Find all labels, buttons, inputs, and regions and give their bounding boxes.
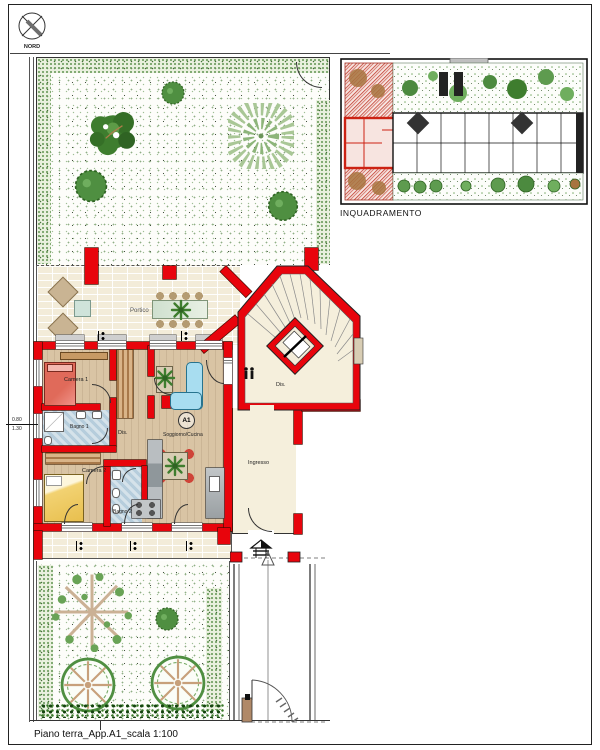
desk-camera1: [60, 352, 108, 360]
sheet-caption: Piano terra_App.A1_scala 1:100: [34, 729, 178, 740]
sink: [112, 470, 121, 480]
entry-path: [230, 550, 330, 730]
bush-icon: [160, 80, 186, 106]
drain-symbol: [76, 541, 85, 551]
hedge-south-right: [206, 588, 222, 710]
hedge-north-top: [37, 58, 329, 73]
tree-icon: [52, 572, 132, 652]
bagno1-label: Bagno 1: [70, 424, 89, 430]
window: [34, 360, 42, 386]
window: [56, 341, 84, 349]
wall-vertical-left-rooms: [110, 346, 116, 380]
bed-camera1-pillow: [47, 364, 73, 372]
portico-label: Portico: [130, 308, 149, 314]
hedge-north-left: [37, 58, 51, 264]
toilet: [112, 488, 120, 498]
outdoor-chairs-bottom: [154, 320, 206, 328]
portico-pillar: [85, 248, 98, 284]
side-table: [74, 300, 91, 317]
camera1-label: Camera 1: [64, 377, 88, 383]
soggiorno-label: Soggiorno/Cucina: [163, 432, 203, 438]
wall-vertical-left-rooms: [110, 398, 116, 446]
toilet: [44, 436, 52, 445]
wall-dis-soggiorno: [148, 396, 154, 418]
hedge-south-left: [38, 565, 53, 717]
drain-symbol: [186, 541, 195, 551]
bush-icon: [267, 190, 299, 222]
window: [98, 341, 126, 349]
title-separator-line: [10, 53, 390, 54]
window: [196, 341, 222, 349]
ingresso-wall-east: [294, 514, 302, 534]
window: [34, 480, 42, 506]
wall-camera2-bagno2: [104, 466, 110, 526]
sofa-L: [170, 392, 202, 410]
table-plant-icon: [170, 299, 192, 321]
kitchen-sink: [209, 476, 220, 492]
french-door: [122, 523, 152, 531]
drain-symbol: [130, 541, 139, 551]
sill-height-annotation: 1.30: [12, 426, 22, 432]
bed-camera2-pillow: [46, 476, 62, 486]
camera2-label: Camera 2: [82, 468, 106, 474]
terrace-wall-cap: [218, 528, 230, 544]
dimension-line: [6, 424, 38, 425]
wall-bagno2-right: [142, 466, 147, 502]
portico-pillar: [163, 266, 176, 279]
shower: [44, 412, 64, 432]
bush-icon: [74, 169, 108, 203]
wall-bagno2-top: [104, 460, 146, 466]
terrace-wall-cap: [34, 531, 42, 559]
north-label: NORD: [16, 44, 48, 50]
north-compass-icon: [14, 8, 50, 44]
inset-caption: INQUADRAMENTO: [340, 208, 422, 218]
door-gap: [224, 358, 232, 384]
floor-plan-sheet: NORD Portico: [0, 0, 600, 750]
apartment-id-badge: A1: [178, 412, 195, 429]
bush-icon: [154, 606, 180, 632]
drain-symbol: [181, 331, 190, 341]
french-door: [172, 523, 202, 531]
sink: [92, 411, 102, 419]
wall-bagno1-camera2: [42, 446, 116, 452]
stair-ingresso-door-gap: [250, 405, 274, 412]
window: [34, 414, 42, 438]
bagno2-label: Bagno 2: [113, 509, 132, 515]
stair-dis-label: Dis.: [276, 382, 285, 388]
stairwell-block: [232, 262, 364, 414]
tree-icon: [228, 103, 294, 169]
window-width-annotation: 0.80: [12, 417, 22, 423]
hedge-north-right: [316, 100, 330, 264]
sink: [76, 411, 86, 419]
drain-symbol: [98, 331, 107, 341]
french-door: [62, 523, 92, 531]
flower-bed: [40, 703, 224, 718]
ingresso-label: Ingresso: [248, 460, 269, 466]
window: [150, 341, 176, 349]
apartment-id-text: A1: [182, 417, 190, 424]
dis1-label: Dis.: [118, 430, 127, 436]
boundary-line-outer: [29, 57, 30, 722]
table-plant-icon: [164, 455, 186, 477]
wardrobe: [117, 350, 133, 418]
inset-site-plan: [340, 58, 588, 205]
wardrobe: [46, 453, 100, 464]
tree-icon: [82, 101, 144, 163]
